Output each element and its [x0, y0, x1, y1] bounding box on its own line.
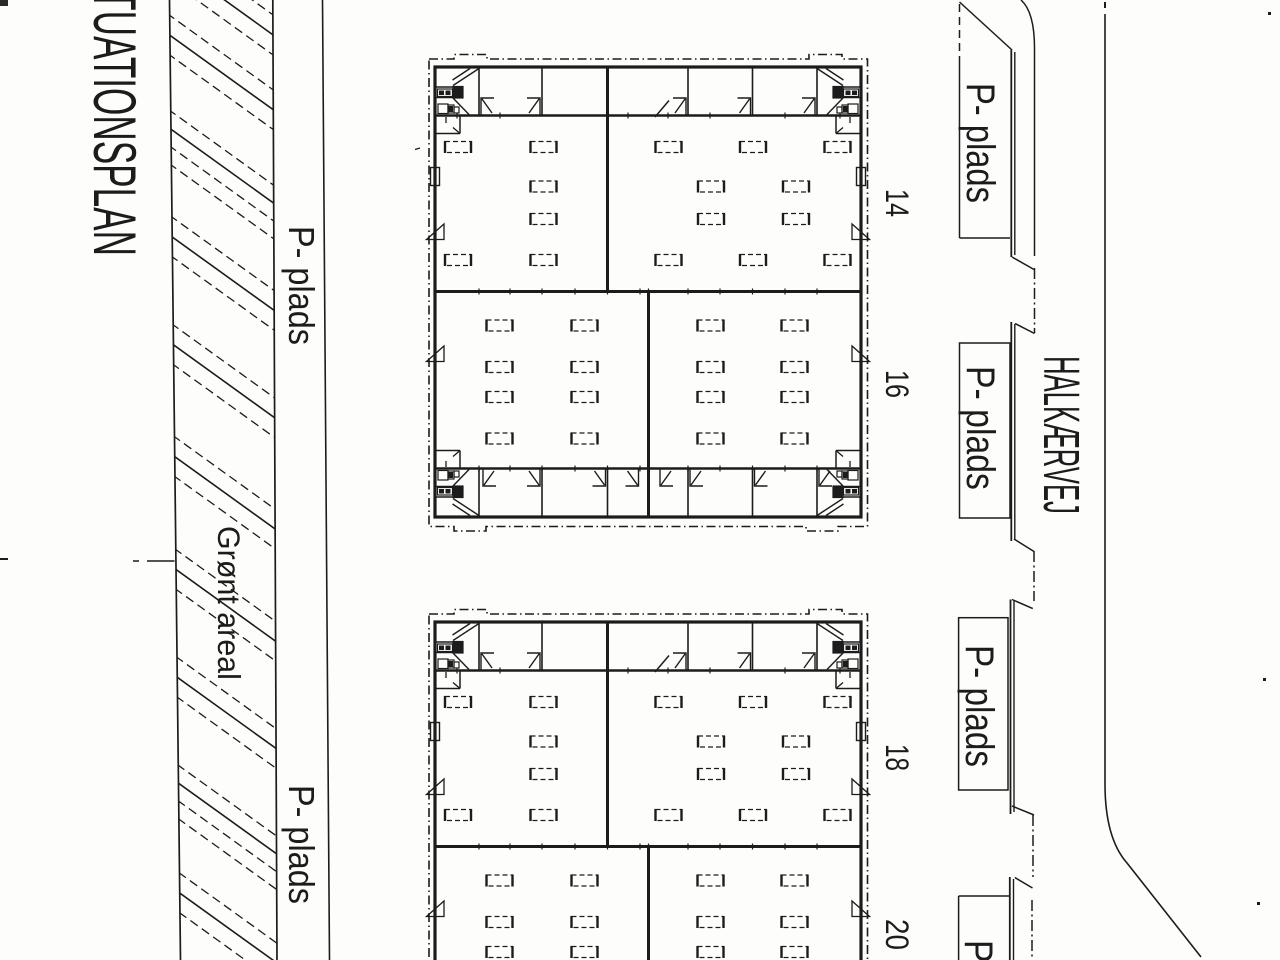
svg-text:Grønt areal: Grønt areal — [211, 526, 247, 680]
svg-text:SITUATIONSPLAN: SITUATIONSPLAN — [81, 0, 148, 256]
svg-text:P- plads: P- plads — [958, 366, 1003, 490]
svg-text:P- plads: P- plads — [956, 940, 1001, 960]
svg-text:HALKÆRVEJ: HALKÆRVEJ — [1033, 356, 1091, 514]
svg-text:16: 16 — [878, 370, 914, 398]
svg-text:P- plads: P- plads — [281, 226, 321, 345]
svg-text:P- plads: P- plads — [281, 785, 321, 904]
svg-text:14: 14 — [878, 189, 914, 217]
svg-text:P- plads: P- plads — [957, 645, 1002, 767]
svg-text:18: 18 — [878, 744, 914, 771]
svg-text:P- plads: P- plads — [958, 83, 1003, 203]
svg-text:20: 20 — [879, 919, 914, 950]
